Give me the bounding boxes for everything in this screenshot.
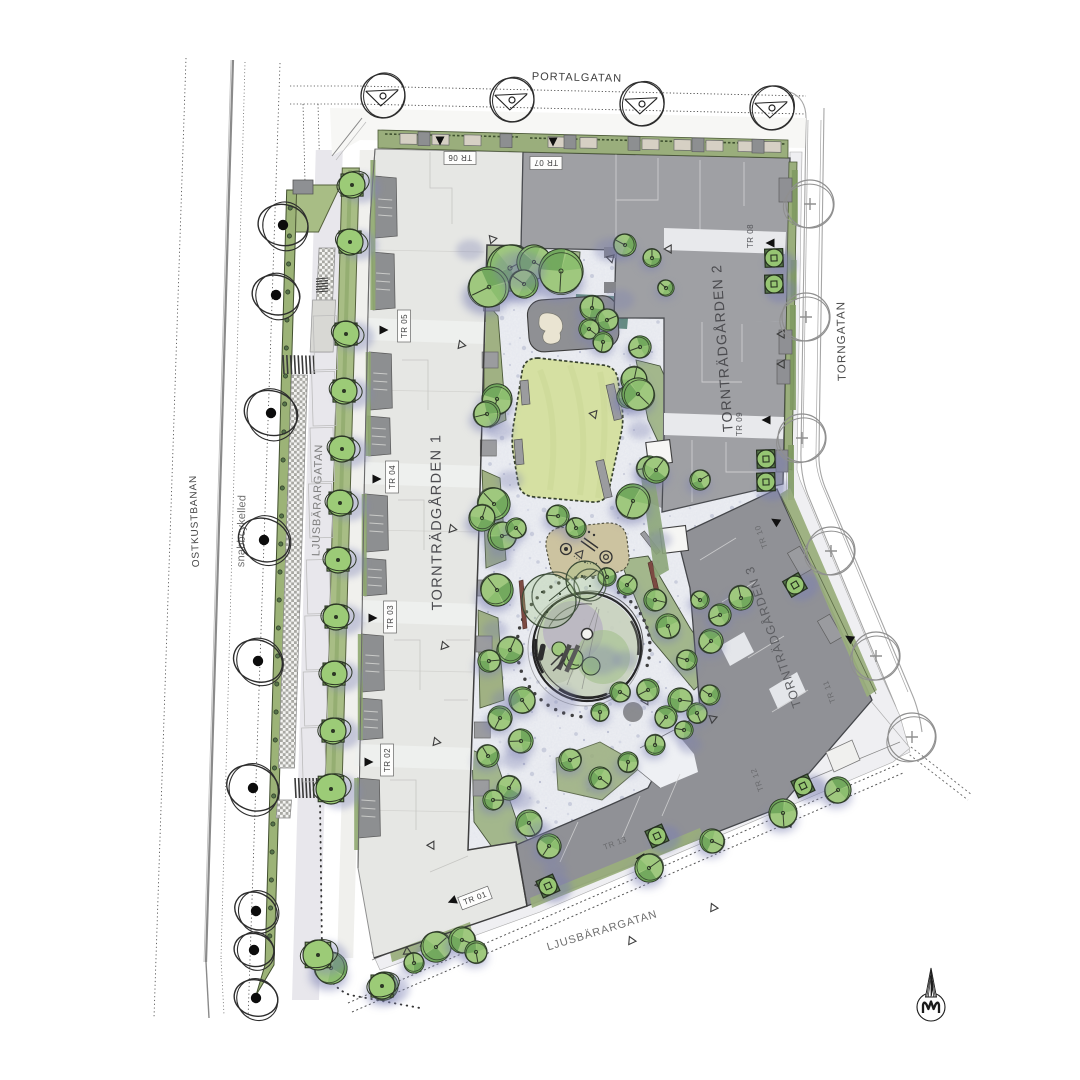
svg-text:TR 05: TR 05 [400, 314, 409, 338]
svg-text:TR 09: TR 09 [735, 412, 744, 436]
svg-text:TR 02: TR 02 [383, 748, 392, 772]
svg-text:TORNGATAN: TORNGATAN [835, 301, 848, 381]
svg-text:PORTALGATAN: PORTALGATAN [532, 71, 623, 85]
svg-text:TR 04: TR 04 [388, 465, 397, 489]
svg-text:TR 07: TR 07 [534, 158, 558, 167]
svg-text:TR 03: TR 03 [386, 605, 395, 629]
svg-text:TR 06: TR 06 [448, 153, 472, 162]
svg-text:TR 08: TR 08 [746, 224, 755, 248]
svg-text:snabbcykelled: snabbcykelled [235, 495, 248, 568]
svg-text:TORNTRÄDGÅRDEN 1: TORNTRÄDGÅRDEN 1 [427, 434, 446, 611]
